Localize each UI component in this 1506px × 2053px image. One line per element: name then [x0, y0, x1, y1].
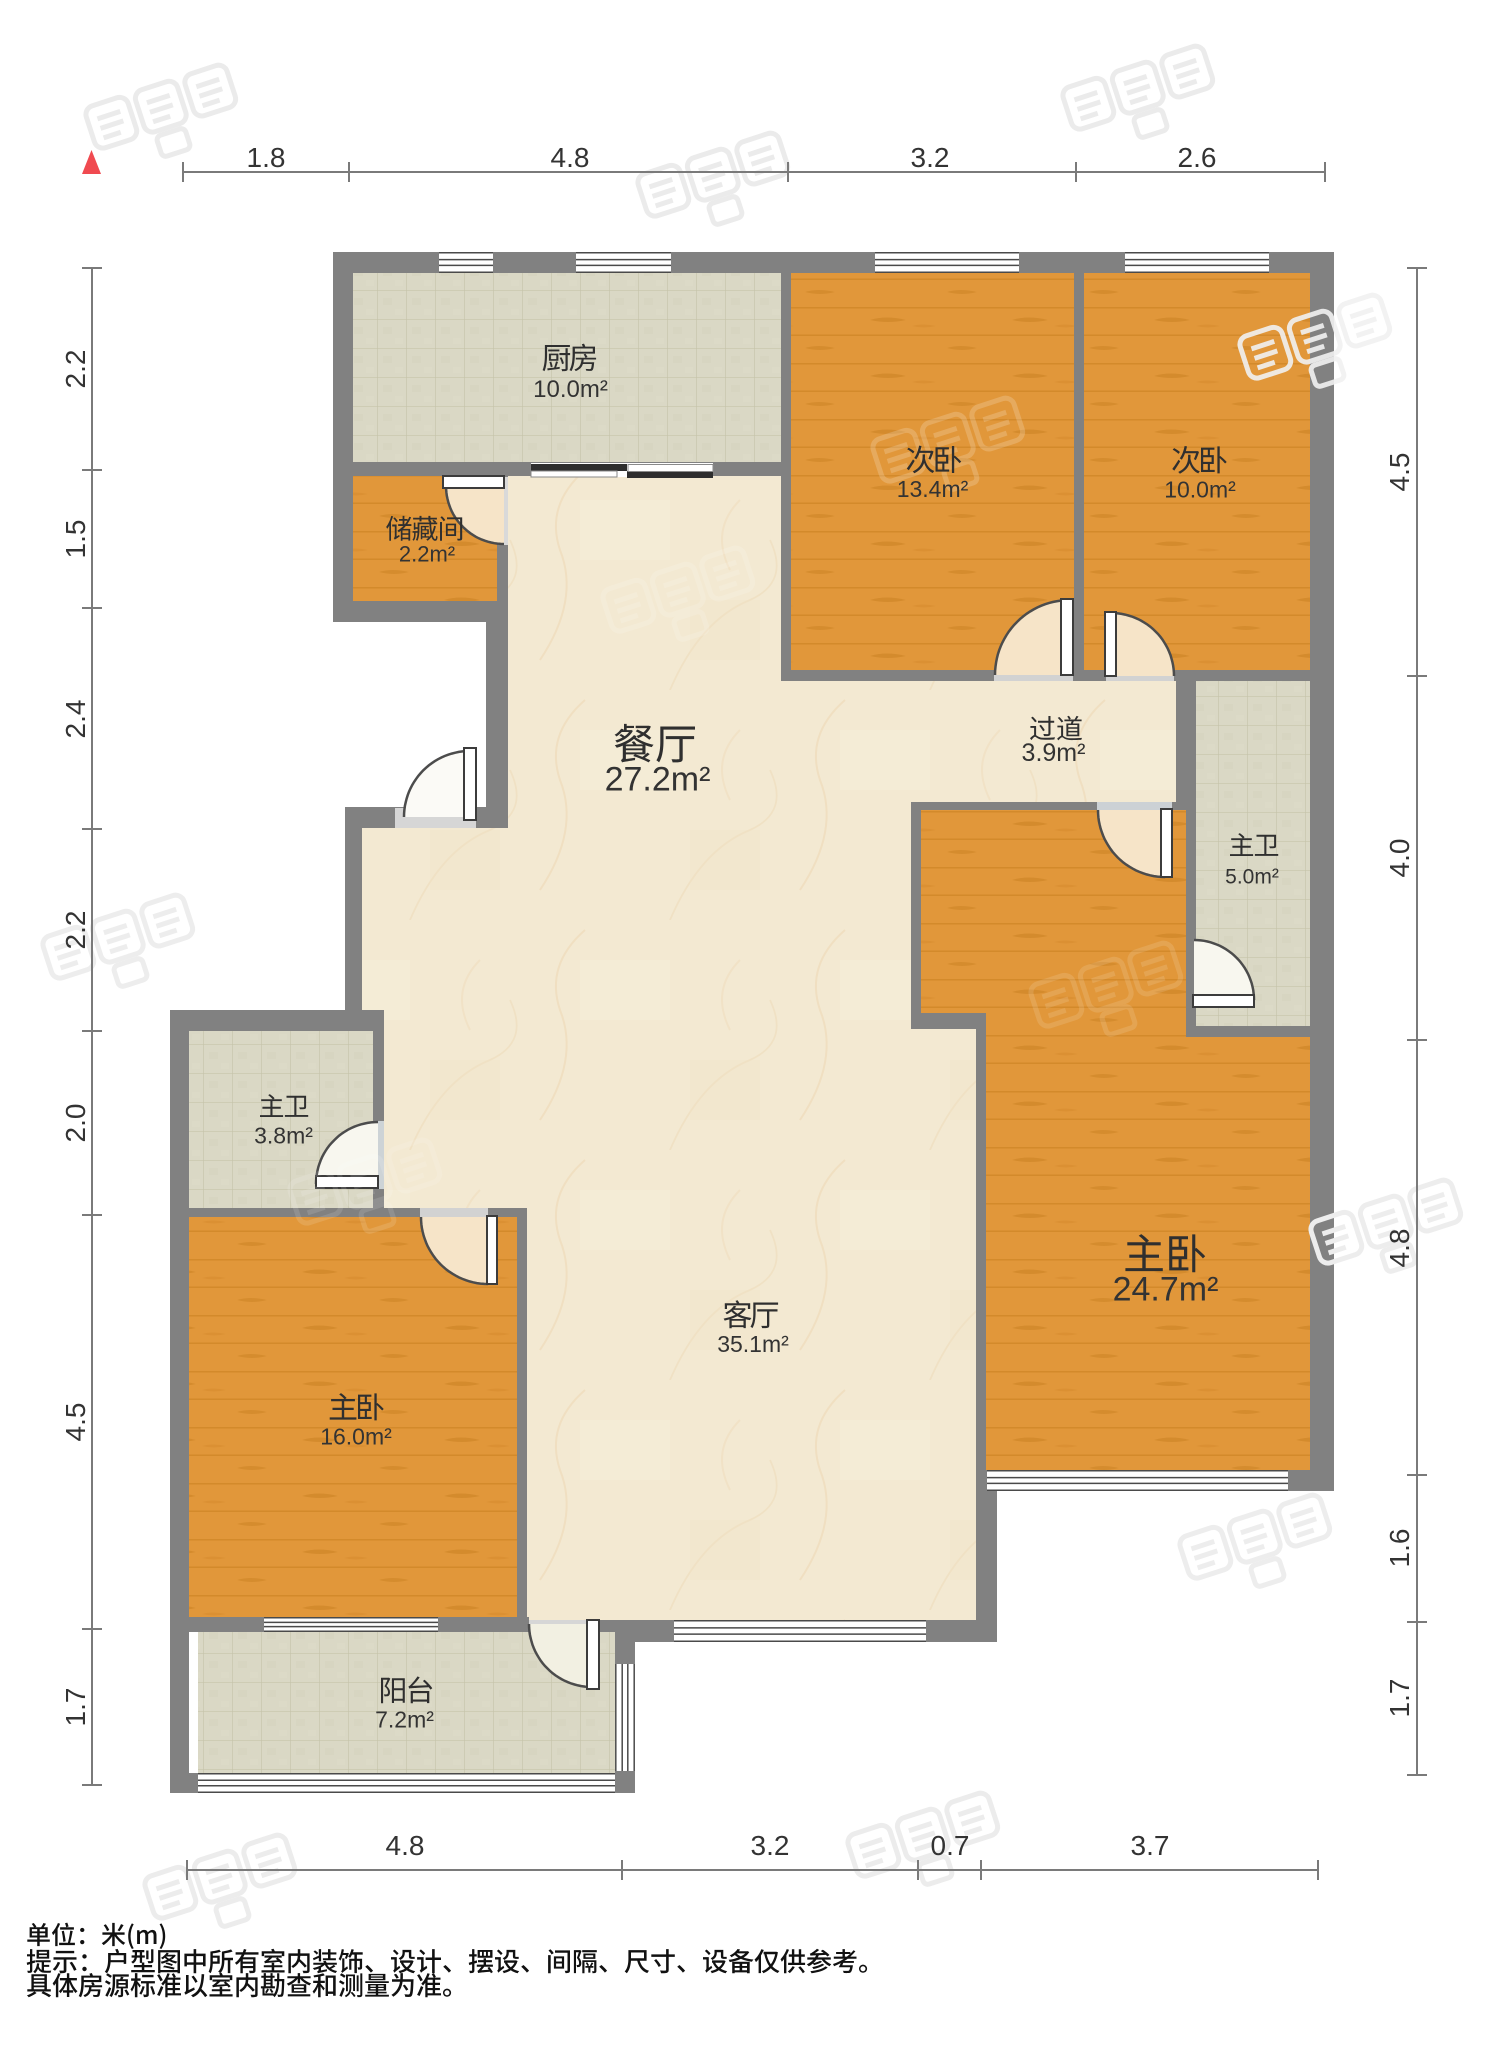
svg-text:1.7: 1.7: [1384, 1679, 1415, 1718]
svg-text:35.1m²: 35.1m²: [717, 1331, 789, 1357]
svg-text:2.6: 2.6: [1178, 142, 1217, 173]
svg-text:10.0m²: 10.0m²: [1164, 477, 1236, 503]
svg-text:3.9m²: 3.9m²: [1022, 739, 1086, 767]
svg-text:1.5: 1.5: [60, 520, 91, 559]
svg-text:5.0m²: 5.0m²: [1225, 865, 1279, 888]
svg-text:0.7: 0.7: [931, 1830, 970, 1861]
svg-text:3.2: 3.2: [911, 142, 950, 173]
svg-text:7.2m²: 7.2m²: [375, 1707, 434, 1733]
svg-text:27.2m²: 27.2m²: [605, 760, 711, 798]
svg-text:10.0m²: 10.0m²: [533, 376, 608, 403]
svg-text:4.0: 4.0: [1384, 839, 1415, 878]
svg-text:3.2: 3.2: [751, 1830, 790, 1861]
svg-text:1.8: 1.8: [247, 142, 286, 173]
svg-text:4.8: 4.8: [386, 1830, 425, 1861]
svg-text:2.2m²: 2.2m²: [399, 542, 455, 567]
svg-text:13.4m²: 13.4m²: [897, 476, 969, 502]
svg-text:4.8: 4.8: [1384, 1229, 1415, 1268]
svg-text:2.2: 2.2: [60, 350, 91, 389]
svg-text:1.6: 1.6: [1384, 1529, 1415, 1568]
svg-text:3.7: 3.7: [1131, 1830, 1170, 1861]
svg-text:2.2: 2.2: [60, 911, 91, 950]
svg-text:4.5: 4.5: [60, 1403, 91, 1442]
svg-text:4.8: 4.8: [551, 142, 590, 173]
svg-text:24.7m²: 24.7m²: [1113, 1270, 1219, 1308]
svg-text:1.7: 1.7: [60, 1688, 91, 1727]
svg-text:3.8m²: 3.8m²: [254, 1123, 313, 1149]
svg-text:4.5: 4.5: [1384, 453, 1415, 492]
svg-text:16.0m²: 16.0m²: [320, 1424, 392, 1450]
svg-text:2.4: 2.4: [60, 700, 91, 739]
svg-text:2.0: 2.0: [60, 1104, 91, 1143]
